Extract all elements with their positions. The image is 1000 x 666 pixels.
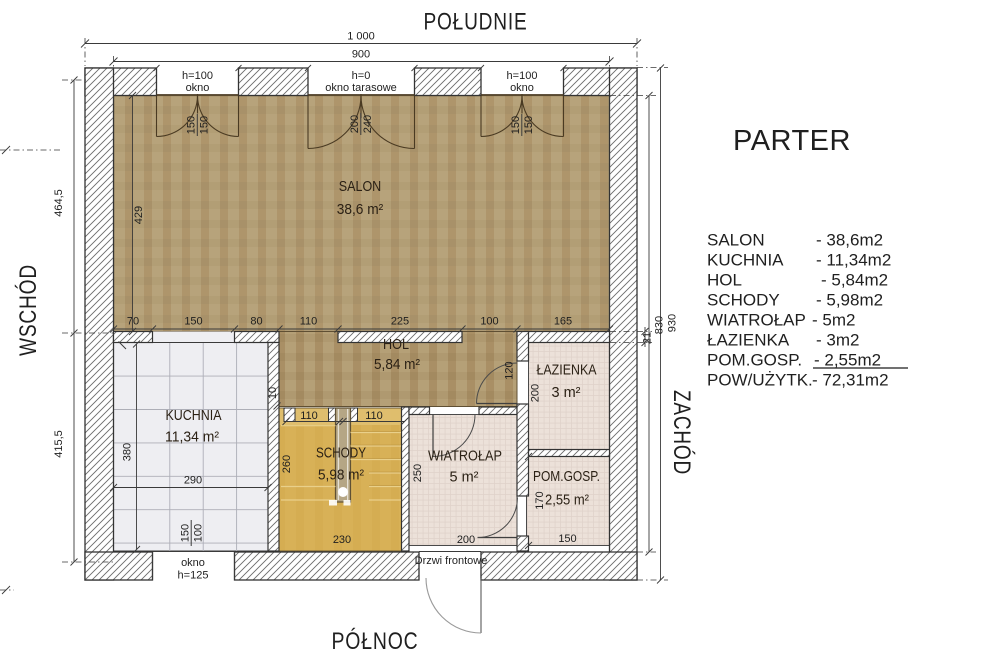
- svg-text:260: 260: [281, 455, 293, 473]
- svg-text:h=125: h=125: [178, 570, 209, 582]
- svg-text:- 38,6m2: - 38,6m2: [816, 231, 883, 250]
- svg-text:KUCHNIA: KUCHNIA: [707, 251, 784, 270]
- svg-text:900: 900: [352, 49, 370, 61]
- svg-text:Drzwi frontowe: Drzwi frontowe: [415, 555, 488, 567]
- svg-text:HOL: HOL: [383, 337, 409, 353]
- svg-text:WIATROŁAP: WIATROŁAP: [707, 311, 806, 330]
- svg-text:POŁUDNIE: POŁUDNIE: [424, 9, 528, 36]
- svg-text:1 000: 1 000: [347, 31, 375, 43]
- svg-text:150: 150: [558, 533, 576, 545]
- svg-text:5,98 m²: 5,98 m²: [318, 468, 364, 484]
- svg-text:5 m²: 5 m²: [450, 470, 479, 486]
- svg-text:- 2,55m2: - 2,55m2: [814, 351, 881, 370]
- svg-text:SCHODY: SCHODY: [707, 291, 780, 310]
- svg-text:- 5m2: - 5m2: [812, 311, 855, 330]
- svg-text:165: 165: [554, 316, 572, 328]
- svg-text:230: 230: [333, 534, 351, 546]
- svg-text:110: 110: [300, 316, 318, 328]
- svg-text:70: 70: [127, 316, 139, 328]
- svg-text:11,34 m²: 11,34 m²: [165, 430, 219, 446]
- svg-text:150: 150: [199, 116, 211, 134]
- svg-text:100: 100: [193, 524, 205, 542]
- svg-text:h=100: h=100: [507, 70, 538, 82]
- svg-text:ŁAZIENKA: ŁAZIENKA: [537, 363, 597, 379]
- svg-text:150: 150: [180, 524, 192, 542]
- svg-text:380: 380: [122, 443, 134, 461]
- svg-text:5,84 m²: 5,84 m²: [374, 357, 420, 373]
- svg-text:110: 110: [365, 410, 383, 422]
- svg-text:WIATROŁAP: WIATROŁAP: [428, 449, 502, 465]
- svg-text:150: 150: [510, 116, 522, 134]
- svg-text:464,5: 464,5: [53, 189, 65, 217]
- svg-text:SALON: SALON: [339, 179, 382, 195]
- svg-text:290: 290: [184, 475, 202, 487]
- svg-text:3 m²: 3 m²: [552, 385, 581, 401]
- svg-text:930: 930: [667, 314, 679, 332]
- svg-text:ŁAZIENKA: ŁAZIENKA: [707, 331, 790, 350]
- svg-text:PÓŁNOC: PÓŁNOC: [332, 628, 419, 655]
- svg-text:POW/UŻYTK.: POW/UŻYTK.: [707, 371, 813, 390]
- svg-text:- 72,31m2: - 72,31m2: [812, 371, 889, 390]
- svg-text:PARTER: PARTER: [733, 125, 851, 157]
- svg-text:okno: okno: [181, 557, 205, 569]
- svg-text:120: 120: [504, 361, 516, 379]
- svg-text:21: 21: [642, 332, 654, 344]
- svg-text:2,55 m²: 2,55 m²: [545, 493, 589, 509]
- svg-text:240: 240: [362, 115, 374, 133]
- svg-text:150: 150: [523, 116, 535, 134]
- svg-text:POM.GOSP.: POM.GOSP.: [533, 469, 600, 485]
- svg-text:SCHODY: SCHODY: [316, 446, 366, 462]
- svg-text:- 5,84m2: - 5,84m2: [821, 271, 888, 290]
- svg-text:429: 429: [133, 206, 145, 224]
- svg-text:POM.GOSP.: POM.GOSP.: [707, 351, 802, 370]
- svg-text:415,5: 415,5: [53, 430, 65, 458]
- svg-text:h=100: h=100: [182, 70, 213, 82]
- svg-text:200: 200: [530, 384, 542, 402]
- svg-text:okno tarasowe: okno tarasowe: [325, 82, 397, 94]
- svg-text:150: 150: [184, 316, 202, 328]
- svg-text:okno: okno: [510, 82, 534, 94]
- svg-text:- 5,98m2: - 5,98m2: [816, 291, 883, 310]
- svg-text:100: 100: [480, 316, 498, 328]
- svg-text:110: 110: [300, 410, 318, 422]
- svg-text:80: 80: [250, 316, 262, 328]
- svg-text:h=0: h=0: [352, 70, 371, 82]
- svg-text:- 11,34m2: - 11,34m2: [816, 251, 891, 270]
- svg-text:200: 200: [349, 115, 361, 133]
- svg-text:225: 225: [391, 316, 409, 328]
- svg-text:HOL: HOL: [707, 271, 742, 290]
- svg-text:250: 250: [412, 464, 424, 482]
- svg-text:38,6 m²: 38,6 m²: [337, 202, 384, 218]
- svg-text:KUCHNIA: KUCHNIA: [166, 408, 222, 424]
- svg-text:WSCHÓD: WSCHÓD: [15, 264, 42, 356]
- svg-text:ZACHÓD: ZACHÓD: [668, 390, 695, 475]
- svg-text:10: 10: [267, 387, 279, 399]
- svg-text:- 3m2: - 3m2: [816, 331, 859, 350]
- svg-text:830: 830: [654, 316, 666, 334]
- svg-text:SALON: SALON: [707, 231, 765, 250]
- svg-text:okno: okno: [186, 82, 210, 94]
- svg-text:150: 150: [186, 116, 198, 134]
- svg-text:200: 200: [457, 534, 475, 546]
